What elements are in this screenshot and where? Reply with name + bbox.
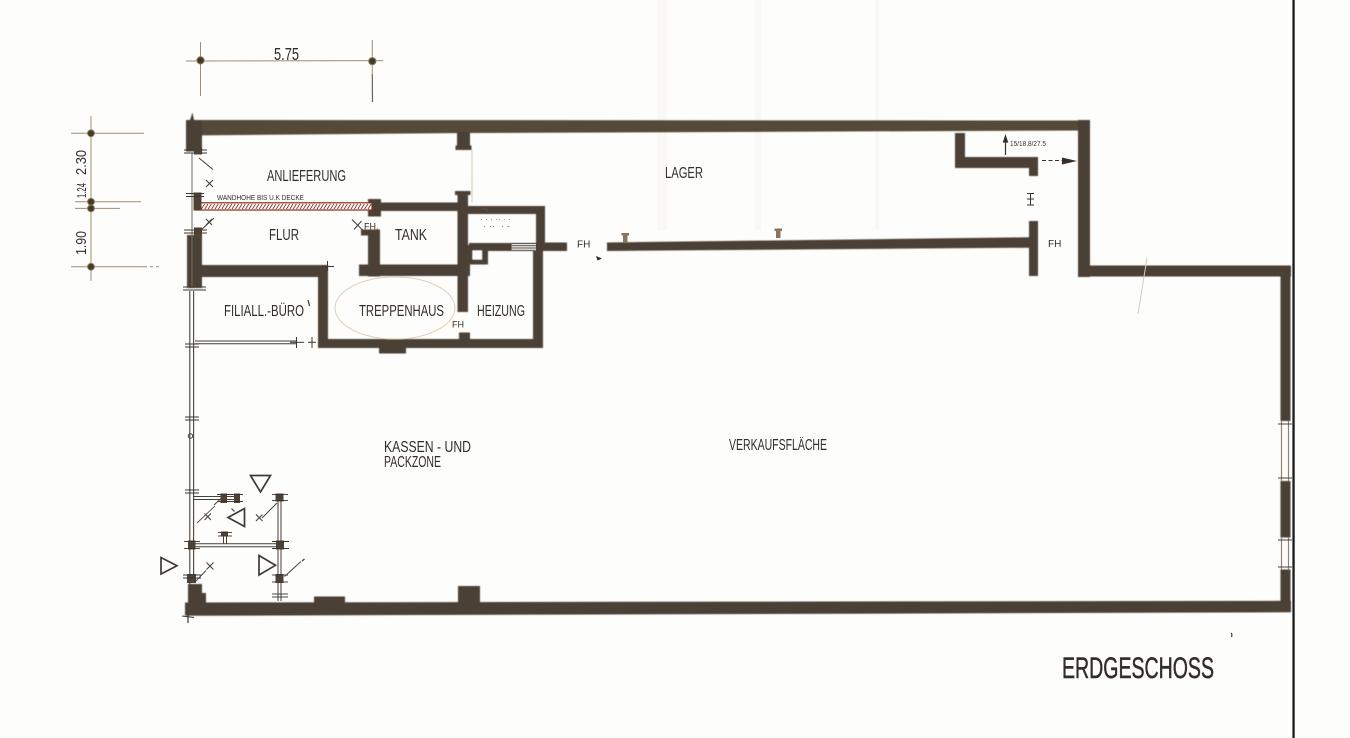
svg-text:PACKZONE: PACKZONE	[384, 454, 441, 471]
svg-text:ANLIEFERUNG: ANLIEFERUNG	[267, 168, 346, 185]
svg-text:ERDGESCHOSS: ERDGESCHOSS	[1062, 652, 1214, 685]
svg-text:1.24: 1.24	[75, 183, 89, 198]
svg-text:VERKAUFSFLÄCHE: VERKAUFSFLÄCHE	[729, 437, 827, 454]
svg-text:·ˉ·ˉ·ˉ··ˉ·ˉ·: ·ˉ·ˉ·ˉ··ˉ·ˉ·	[480, 217, 511, 223]
svg-text:1.90: 1.90	[74, 231, 90, 255]
svg-text:FH: FH	[577, 240, 590, 251]
svg-text:FH.: FH.	[364, 222, 379, 232]
svg-text:WANDHÖHE BIS U.K DECKE: WANDHÖHE BIS U.K DECKE	[217, 194, 304, 202]
svg-text:2.30: 2.30	[74, 150, 90, 175]
svg-text:FLUR: FLUR	[269, 227, 299, 244]
svg-text:FILIALL.-BÜRO: FILIALL.-BÜRO	[224, 302, 304, 320]
svg-text:5.75: 5.75	[274, 44, 299, 64]
svg-text:TANK: TANK	[395, 227, 428, 244]
svg-text:HEIZUNG: HEIZUNG	[477, 303, 525, 320]
svg-text:FH: FH	[452, 320, 464, 330]
svg-text:TREPPENHAUS: TREPPENHAUS	[359, 303, 444, 320]
svg-text:·ˉ··ˉ ·ˉ-: ·ˉ··ˉ ·ˉ-	[483, 224, 510, 230]
svg-text:FH: FH	[1048, 239, 1061, 250]
svg-text:LAGER: LAGER	[665, 165, 703, 182]
svg-text:15/18.8/27.5: 15/18.8/27.5	[1010, 141, 1046, 148]
